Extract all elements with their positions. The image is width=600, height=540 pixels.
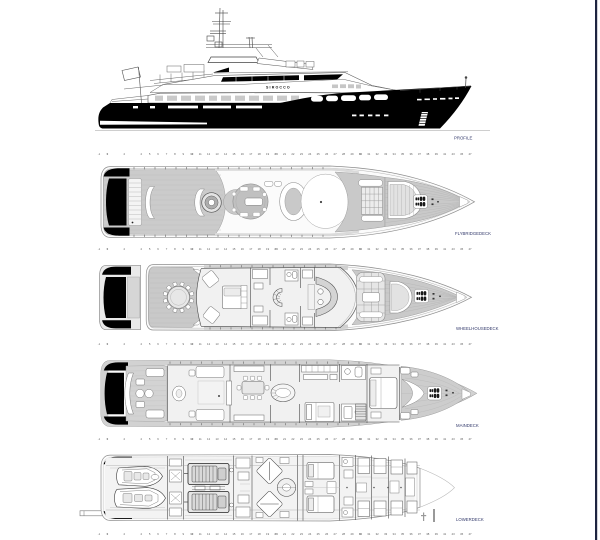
svg-text:33: 33 <box>384 152 388 156</box>
svg-text:39: 39 <box>435 437 439 441</box>
svg-text:31: 31 <box>367 532 371 536</box>
svg-text:14: 14 <box>224 152 228 156</box>
svg-text:28: 28 <box>342 532 346 536</box>
svg-text:33: 33 <box>384 342 388 346</box>
svg-text:32: 32 <box>376 152 380 156</box>
svg-text:22: 22 <box>291 152 295 156</box>
svg-text:28: 28 <box>342 342 346 346</box>
svg-text:29: 29 <box>350 247 354 251</box>
svg-text:31: 31 <box>367 152 371 156</box>
svg-text:24: 24 <box>308 247 312 251</box>
svg-text:-1: -1 <box>98 532 101 536</box>
svg-text:21: 21 <box>283 342 287 346</box>
svg-text:28: 28 <box>342 152 346 156</box>
svg-text:21: 21 <box>283 152 287 156</box>
svg-text:45: 45 <box>460 532 464 536</box>
svg-text:-1: -1 <box>98 437 101 441</box>
svg-text:11: 11 <box>199 532 202 536</box>
svg-text:41: 41 <box>443 532 447 536</box>
svg-text:35: 35 <box>401 437 405 441</box>
svg-text:45: 45 <box>460 437 464 441</box>
svg-text:18: 18 <box>258 437 262 441</box>
svg-text:32: 32 <box>376 247 380 251</box>
svg-text:35: 35 <box>401 247 405 251</box>
svg-text:31: 31 <box>367 342 371 346</box>
svg-text:35: 35 <box>401 532 405 536</box>
svg-text:12: 12 <box>207 342 211 346</box>
svg-text:19: 19 <box>266 532 270 536</box>
svg-text:35: 35 <box>401 152 405 156</box>
svg-text:PROFILE: PROFILE <box>454 136 473 141</box>
svg-text:32: 32 <box>376 532 380 536</box>
svg-text:47: 47 <box>468 437 472 441</box>
svg-text:30: 30 <box>359 532 363 536</box>
svg-text:16: 16 <box>241 532 245 536</box>
svg-text:25: 25 <box>317 437 321 441</box>
svg-text:15: 15 <box>232 247 236 251</box>
svg-text:24: 24 <box>308 342 312 346</box>
svg-text:38: 38 <box>426 342 430 346</box>
svg-text:39: 39 <box>435 152 439 156</box>
svg-text:33: 33 <box>384 532 388 536</box>
svg-text:38: 38 <box>426 247 430 251</box>
svg-text:41: 41 <box>443 152 447 156</box>
svg-text:10: 10 <box>190 247 194 251</box>
svg-text:37: 37 <box>418 437 422 441</box>
svg-text:18: 18 <box>258 247 262 251</box>
svg-text:28: 28 <box>342 437 346 441</box>
svg-text:21: 21 <box>283 437 287 441</box>
svg-text:20: 20 <box>275 532 279 536</box>
svg-text:43: 43 <box>452 247 456 251</box>
svg-text:47: 47 <box>468 152 472 156</box>
svg-text:22: 22 <box>291 247 295 251</box>
svg-text:37: 37 <box>418 247 422 251</box>
svg-text:11: 11 <box>199 437 202 441</box>
svg-text:27: 27 <box>334 152 338 156</box>
svg-text:34: 34 <box>393 342 397 346</box>
svg-text:16: 16 <box>241 342 245 346</box>
svg-text:22: 22 <box>291 342 295 346</box>
svg-text:34: 34 <box>393 152 397 156</box>
svg-text:28: 28 <box>342 247 346 251</box>
svg-text:45: 45 <box>460 152 464 156</box>
svg-text:13: 13 <box>215 532 219 536</box>
svg-text:45: 45 <box>460 247 464 251</box>
svg-text:10: 10 <box>190 532 194 536</box>
svg-text:17: 17 <box>249 532 253 536</box>
svg-text:23: 23 <box>300 247 304 251</box>
svg-text:25: 25 <box>317 152 321 156</box>
svg-text:20: 20 <box>275 247 279 251</box>
svg-text:SIROCCO: SIROCCO <box>266 86 291 90</box>
svg-text:12: 12 <box>207 247 211 251</box>
svg-text:25: 25 <box>317 532 321 536</box>
svg-text:23: 23 <box>300 152 304 156</box>
svg-text:19: 19 <box>266 342 270 346</box>
svg-text:27: 27 <box>334 247 338 251</box>
svg-text:36: 36 <box>409 532 413 536</box>
svg-text:34: 34 <box>393 437 397 441</box>
svg-text:38: 38 <box>426 152 430 156</box>
svg-text:17: 17 <box>249 152 253 156</box>
svg-text:MAINDECK: MAINDECK <box>456 423 479 428</box>
svg-text:11: 11 <box>199 152 202 156</box>
svg-text:22: 22 <box>291 437 295 441</box>
svg-text:20: 20 <box>275 342 279 346</box>
svg-text:13: 13 <box>215 152 219 156</box>
svg-text:22: 22 <box>291 532 295 536</box>
svg-text:38: 38 <box>426 437 430 441</box>
svg-text:31: 31 <box>367 437 371 441</box>
svg-text:35: 35 <box>401 342 405 346</box>
svg-text:FLYBRIDGEDECK: FLYBRIDGEDECK <box>455 231 491 236</box>
svg-text:13: 13 <box>215 342 219 346</box>
svg-text:32: 32 <box>376 437 380 441</box>
svg-text:14: 14 <box>224 532 228 536</box>
svg-text:LOWERDECK: LOWERDECK <box>456 517 484 522</box>
svg-text:12: 12 <box>207 437 211 441</box>
svg-text:11: 11 <box>199 342 202 346</box>
svg-text:34: 34 <box>393 247 397 251</box>
svg-text:30: 30 <box>359 342 363 346</box>
svg-text:18: 18 <box>258 152 262 156</box>
svg-text:30: 30 <box>359 152 363 156</box>
svg-text:27: 27 <box>334 532 338 536</box>
svg-text:-1: -1 <box>98 342 101 346</box>
svg-text:15: 15 <box>232 342 236 346</box>
svg-text:38: 38 <box>426 532 430 536</box>
svg-text:37: 37 <box>418 342 422 346</box>
svg-text:24: 24 <box>308 152 312 156</box>
svg-text:41: 41 <box>443 437 447 441</box>
svg-text:21: 21 <box>283 532 287 536</box>
svg-text:29: 29 <box>350 532 354 536</box>
svg-text:23: 23 <box>300 437 304 441</box>
svg-text:14: 14 <box>224 247 228 251</box>
svg-text:20: 20 <box>275 437 279 441</box>
svg-text:16: 16 <box>241 152 245 156</box>
svg-text:26: 26 <box>325 437 329 441</box>
svg-text:41: 41 <box>443 247 447 251</box>
svg-text:14: 14 <box>224 437 228 441</box>
svg-text:17: 17 <box>249 437 253 441</box>
svg-text:-1: -1 <box>98 247 101 251</box>
svg-text:43: 43 <box>452 532 456 536</box>
svg-text:10: 10 <box>190 437 194 441</box>
svg-text:21: 21 <box>283 247 287 251</box>
svg-text:19: 19 <box>266 437 270 441</box>
svg-text:27: 27 <box>334 342 338 346</box>
svg-text:17: 17 <box>249 247 253 251</box>
svg-text:19: 19 <box>266 247 270 251</box>
svg-text:30: 30 <box>359 437 363 441</box>
svg-text:18: 18 <box>258 532 262 536</box>
svg-text:20: 20 <box>275 152 279 156</box>
svg-text:15: 15 <box>232 532 236 536</box>
svg-text:39: 39 <box>435 342 439 346</box>
svg-text:26: 26 <box>325 247 329 251</box>
svg-text:47: 47 <box>468 532 472 536</box>
svg-text:39: 39 <box>435 532 439 536</box>
svg-text:29: 29 <box>350 437 354 441</box>
svg-text:37: 37 <box>418 532 422 536</box>
svg-text:43: 43 <box>452 342 456 346</box>
svg-text:47: 47 <box>468 247 472 251</box>
svg-text:-1: -1 <box>98 152 101 156</box>
svg-text:26: 26 <box>325 532 329 536</box>
svg-text:15: 15 <box>232 152 236 156</box>
svg-text:14: 14 <box>224 342 228 346</box>
svg-text:13: 13 <box>215 247 219 251</box>
svg-text:29: 29 <box>350 342 354 346</box>
svg-text:29: 29 <box>350 152 354 156</box>
svg-text:43: 43 <box>452 152 456 156</box>
svg-text:13: 13 <box>215 437 219 441</box>
svg-text:10: 10 <box>190 342 194 346</box>
svg-text:15: 15 <box>232 437 236 441</box>
svg-text:26: 26 <box>325 342 329 346</box>
svg-text:25: 25 <box>317 247 321 251</box>
svg-text:25: 25 <box>317 342 321 346</box>
svg-text:33: 33 <box>384 247 388 251</box>
svg-text:24: 24 <box>308 437 312 441</box>
svg-text:45: 45 <box>460 342 464 346</box>
svg-text:27: 27 <box>334 437 338 441</box>
svg-text:31: 31 <box>367 247 371 251</box>
svg-text:36: 36 <box>409 342 413 346</box>
svg-text:26: 26 <box>325 152 329 156</box>
svg-text:23: 23 <box>300 342 304 346</box>
svg-text:18: 18 <box>258 342 262 346</box>
svg-text:39: 39 <box>435 247 439 251</box>
svg-text:36: 36 <box>409 247 413 251</box>
svg-text:47: 47 <box>468 342 472 346</box>
svg-text:12: 12 <box>207 152 211 156</box>
svg-text:19: 19 <box>266 152 270 156</box>
svg-text:17: 17 <box>249 342 253 346</box>
svg-text:WHEELHOUSEDECK: WHEELHOUSEDECK <box>456 326 499 331</box>
svg-text:33: 33 <box>384 437 388 441</box>
svg-text:11: 11 <box>199 247 202 251</box>
svg-text:23: 23 <box>300 532 304 536</box>
svg-text:12: 12 <box>207 532 211 536</box>
svg-text:32: 32 <box>376 342 380 346</box>
svg-text:24: 24 <box>308 532 312 536</box>
svg-text:43: 43 <box>452 437 456 441</box>
svg-text:37: 37 <box>418 152 422 156</box>
svg-text:36: 36 <box>409 437 413 441</box>
svg-text:30: 30 <box>359 247 363 251</box>
svg-text:16: 16 <box>241 437 245 441</box>
svg-text:36: 36 <box>409 152 413 156</box>
svg-text:16: 16 <box>241 247 245 251</box>
svg-text:10: 10 <box>190 152 194 156</box>
svg-text:41: 41 <box>443 342 447 346</box>
svg-text:34: 34 <box>393 532 397 536</box>
